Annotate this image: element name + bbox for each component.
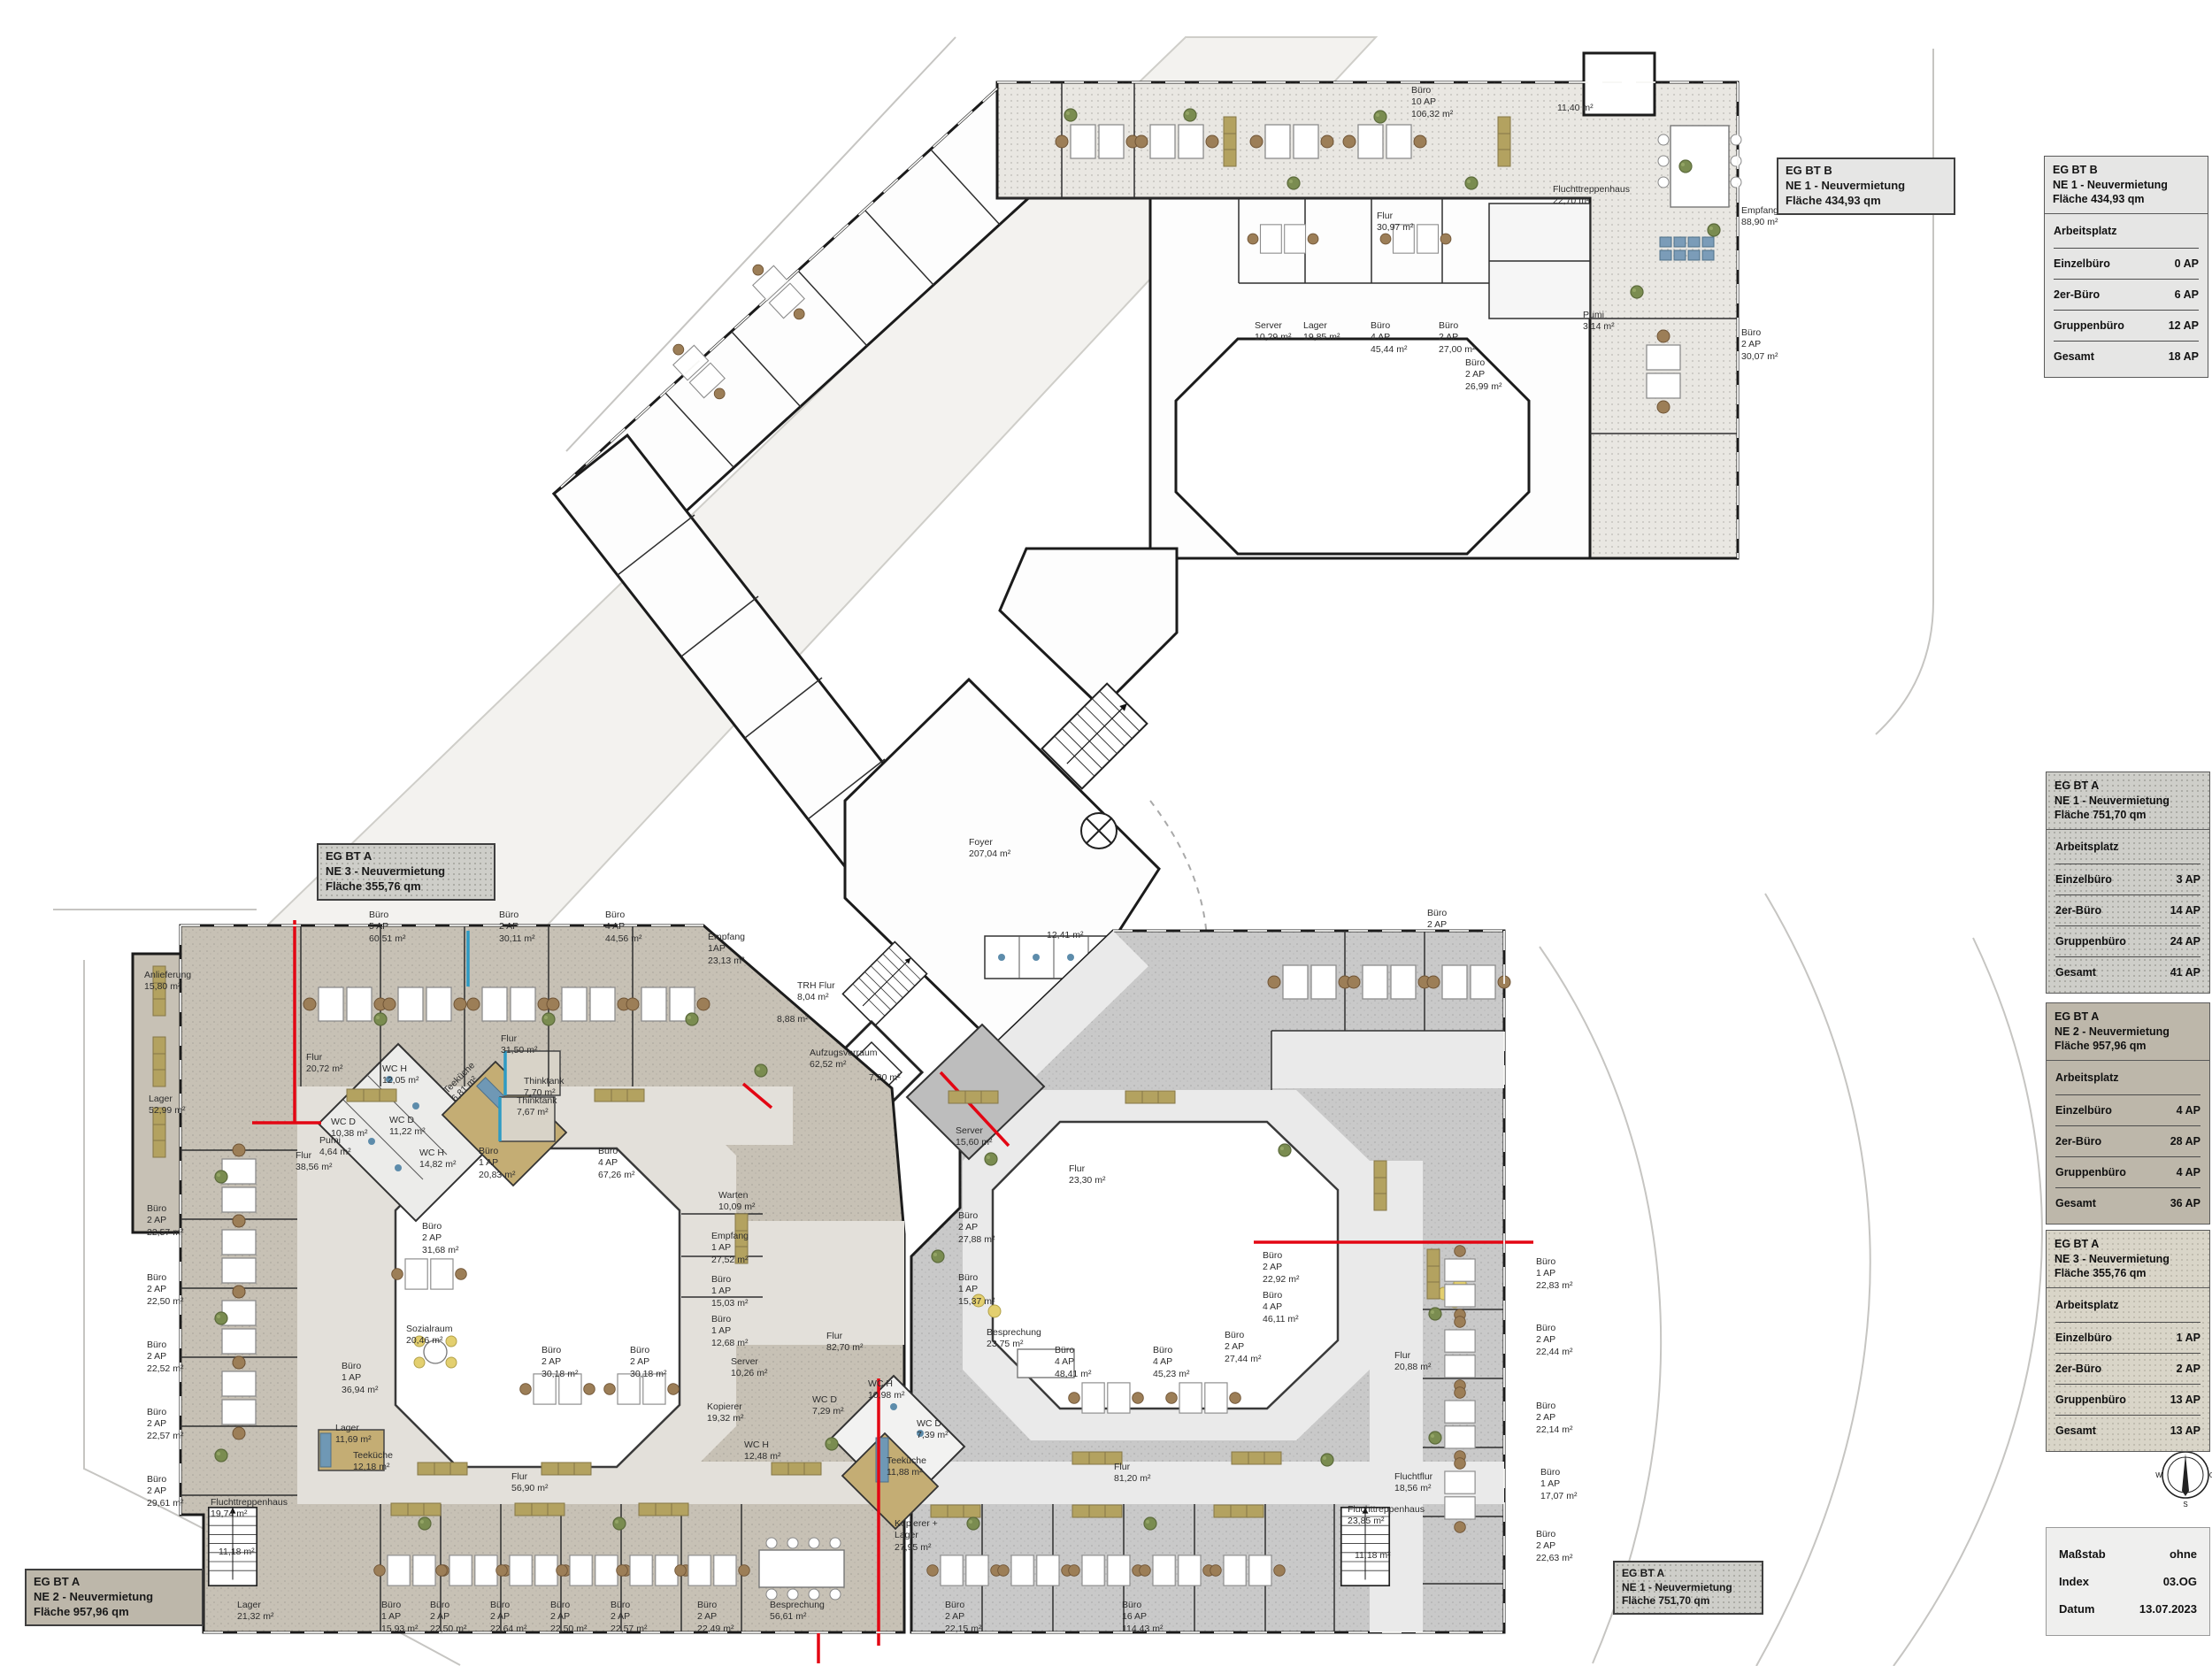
legend-row: Gruppenbüro24 AP bbox=[2055, 925, 2200, 956]
legend-egbtb-ne1: EG BT B NE 1 - Neuvermietung Fläche 434,… bbox=[2044, 156, 2208, 378]
legend-row: Einzelbüro4 AP bbox=[2055, 1094, 2200, 1125]
legend-row: Einzelbüro0 AP bbox=[2054, 248, 2199, 279]
legend-row: Gesamt36 AP bbox=[2055, 1187, 2200, 1218]
legend-title: EG BT B NE 1 - Neuvermietung Fläche 434,… bbox=[2045, 157, 2208, 214]
legend-row: Gruppenbüro13 AP bbox=[2055, 1384, 2200, 1415]
conference-table bbox=[1658, 126, 1741, 207]
legend-egbta-ne1: EG BT A NE 1 - Neuvermietung Fläche 751,… bbox=[2046, 772, 2210, 994]
titleblock-row: Datum13.07.2023 bbox=[2047, 1595, 2209, 1623]
legend-egbta-ne2: EG BT A NE 2 - Neuvermietung Fläche 957,… bbox=[2046, 1002, 2210, 1225]
floor-plan-sheet: N O S W Büro 10 AP 106,32 m²11,40 m²Fluc… bbox=[0, 0, 2212, 1666]
legend-row: Gruppenbüro12 AP bbox=[2054, 310, 2199, 341]
legend-header: Arbeitsplatz bbox=[2045, 216, 2208, 248]
legend-row: Gesamt18 AP bbox=[2054, 341, 2199, 372]
area-tag-egbta-ne3: EG BT A NE 3 - Neuvermietung Fläche 355,… bbox=[317, 843, 495, 901]
legend-row: 2er-Büro2 AP bbox=[2055, 1353, 2200, 1384]
legend-row: Gesamt41 AP bbox=[2055, 956, 2200, 987]
legend-row: 2er-Büro28 AP bbox=[2055, 1125, 2200, 1156]
area-tag-egbtb-ne1: EG BT B NE 1 - Neuvermietung Fläche 434,… bbox=[1777, 157, 1955, 215]
legend-row: 2er-Büro6 AP bbox=[2054, 279, 2199, 310]
legend-title: EG BT A NE 1 - Neuvermietung Fläche 751,… bbox=[2047, 772, 2209, 830]
legend-row: Gruppenbüro4 AP bbox=[2055, 1156, 2200, 1187]
title-block: Maßstabohne Index03.OG Datum13.07.2023 bbox=[2046, 1527, 2210, 1636]
legend-egbta-ne3: EG BT A NE 3 - Neuvermietung Fläche 355,… bbox=[2046, 1230, 2210, 1452]
legend-row: 2er-Büro14 AP bbox=[2055, 894, 2200, 925]
legend-row: Einzelbüro1 AP bbox=[2055, 1322, 2200, 1353]
legend-title: EG BT A NE 2 - Neuvermietung Fläche 957,… bbox=[2047, 1003, 2209, 1061]
legend-header: Arbeitsplatz bbox=[2047, 1063, 2209, 1094]
legend-row: Gesamt13 AP bbox=[2055, 1415, 2200, 1446]
legend-row: Einzelbüro3 AP bbox=[2055, 864, 2200, 894]
legend-header: Arbeitsplatz bbox=[2047, 1290, 2209, 1322]
area-tag-egbta-ne1: EG BT A NE 1 - Neuvermietung Fläche 751,… bbox=[1613, 1561, 1763, 1615]
legend-header: Arbeitsplatz bbox=[2047, 832, 2209, 864]
floor-plan-drawing: N O S W bbox=[0, 0, 2212, 1666]
titleblock-row: Maßstabohne bbox=[2047, 1540, 2209, 1568]
titleblock-row: Index03.OG bbox=[2047, 1568, 2209, 1595]
legend-title: EG BT A NE 3 - Neuvermietung Fläche 355,… bbox=[2047, 1231, 2209, 1288]
area-tag-egbta-ne2: EG BT A NE 2 - Neuvermietung Fläche 957,… bbox=[25, 1569, 204, 1626]
svg-text:W: W bbox=[2155, 1471, 2162, 1479]
compass-icon: N O S W bbox=[2155, 1444, 2212, 1509]
svg-text:S: S bbox=[2183, 1501, 2187, 1509]
